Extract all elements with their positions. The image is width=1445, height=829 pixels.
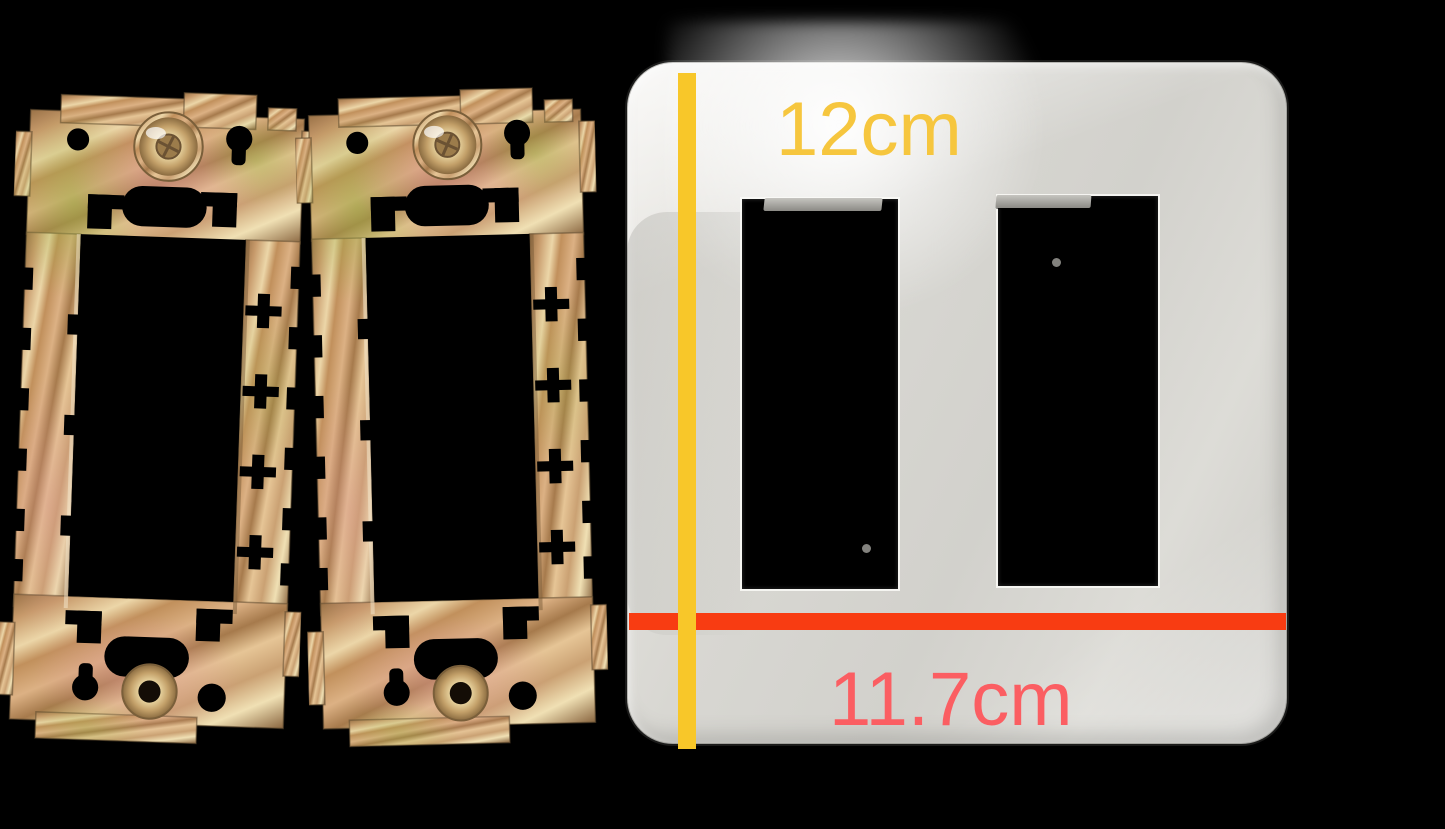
plate-opening-left [742, 199, 898, 589]
reflection-dot [1052, 258, 1061, 267]
plate-opening-right [998, 196, 1158, 586]
width-dimension-label: 11.7cm [829, 662, 1073, 738]
mounting-tab-left [763, 198, 882, 211]
product-photo-scene: 12cm 11.7cm [0, 0, 1445, 829]
mounting-bracket-left [0, 81, 319, 755]
height-measure-line [678, 73, 696, 749]
height-dimension-label: 12cm [776, 92, 962, 168]
mounting-bracket-right [294, 80, 610, 755]
width-measure-line [629, 613, 1286, 630]
reflection-dot [862, 544, 871, 553]
mounting-tab-right [996, 195, 1092, 208]
